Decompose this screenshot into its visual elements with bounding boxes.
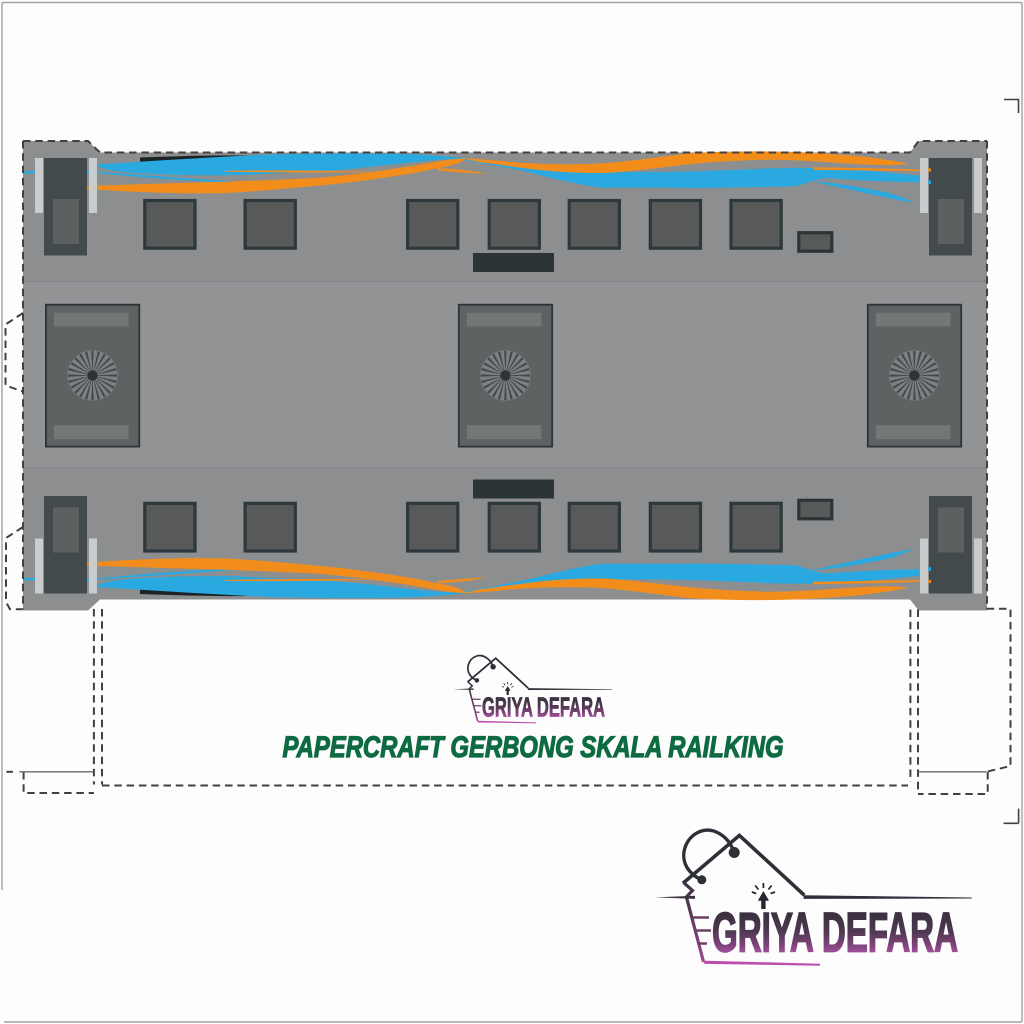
svg-text:PAPERCRAFT GERBONG SKALA RAILK: PAPERCRAFT GERBONG SKALA RAILKING xyxy=(283,731,784,764)
